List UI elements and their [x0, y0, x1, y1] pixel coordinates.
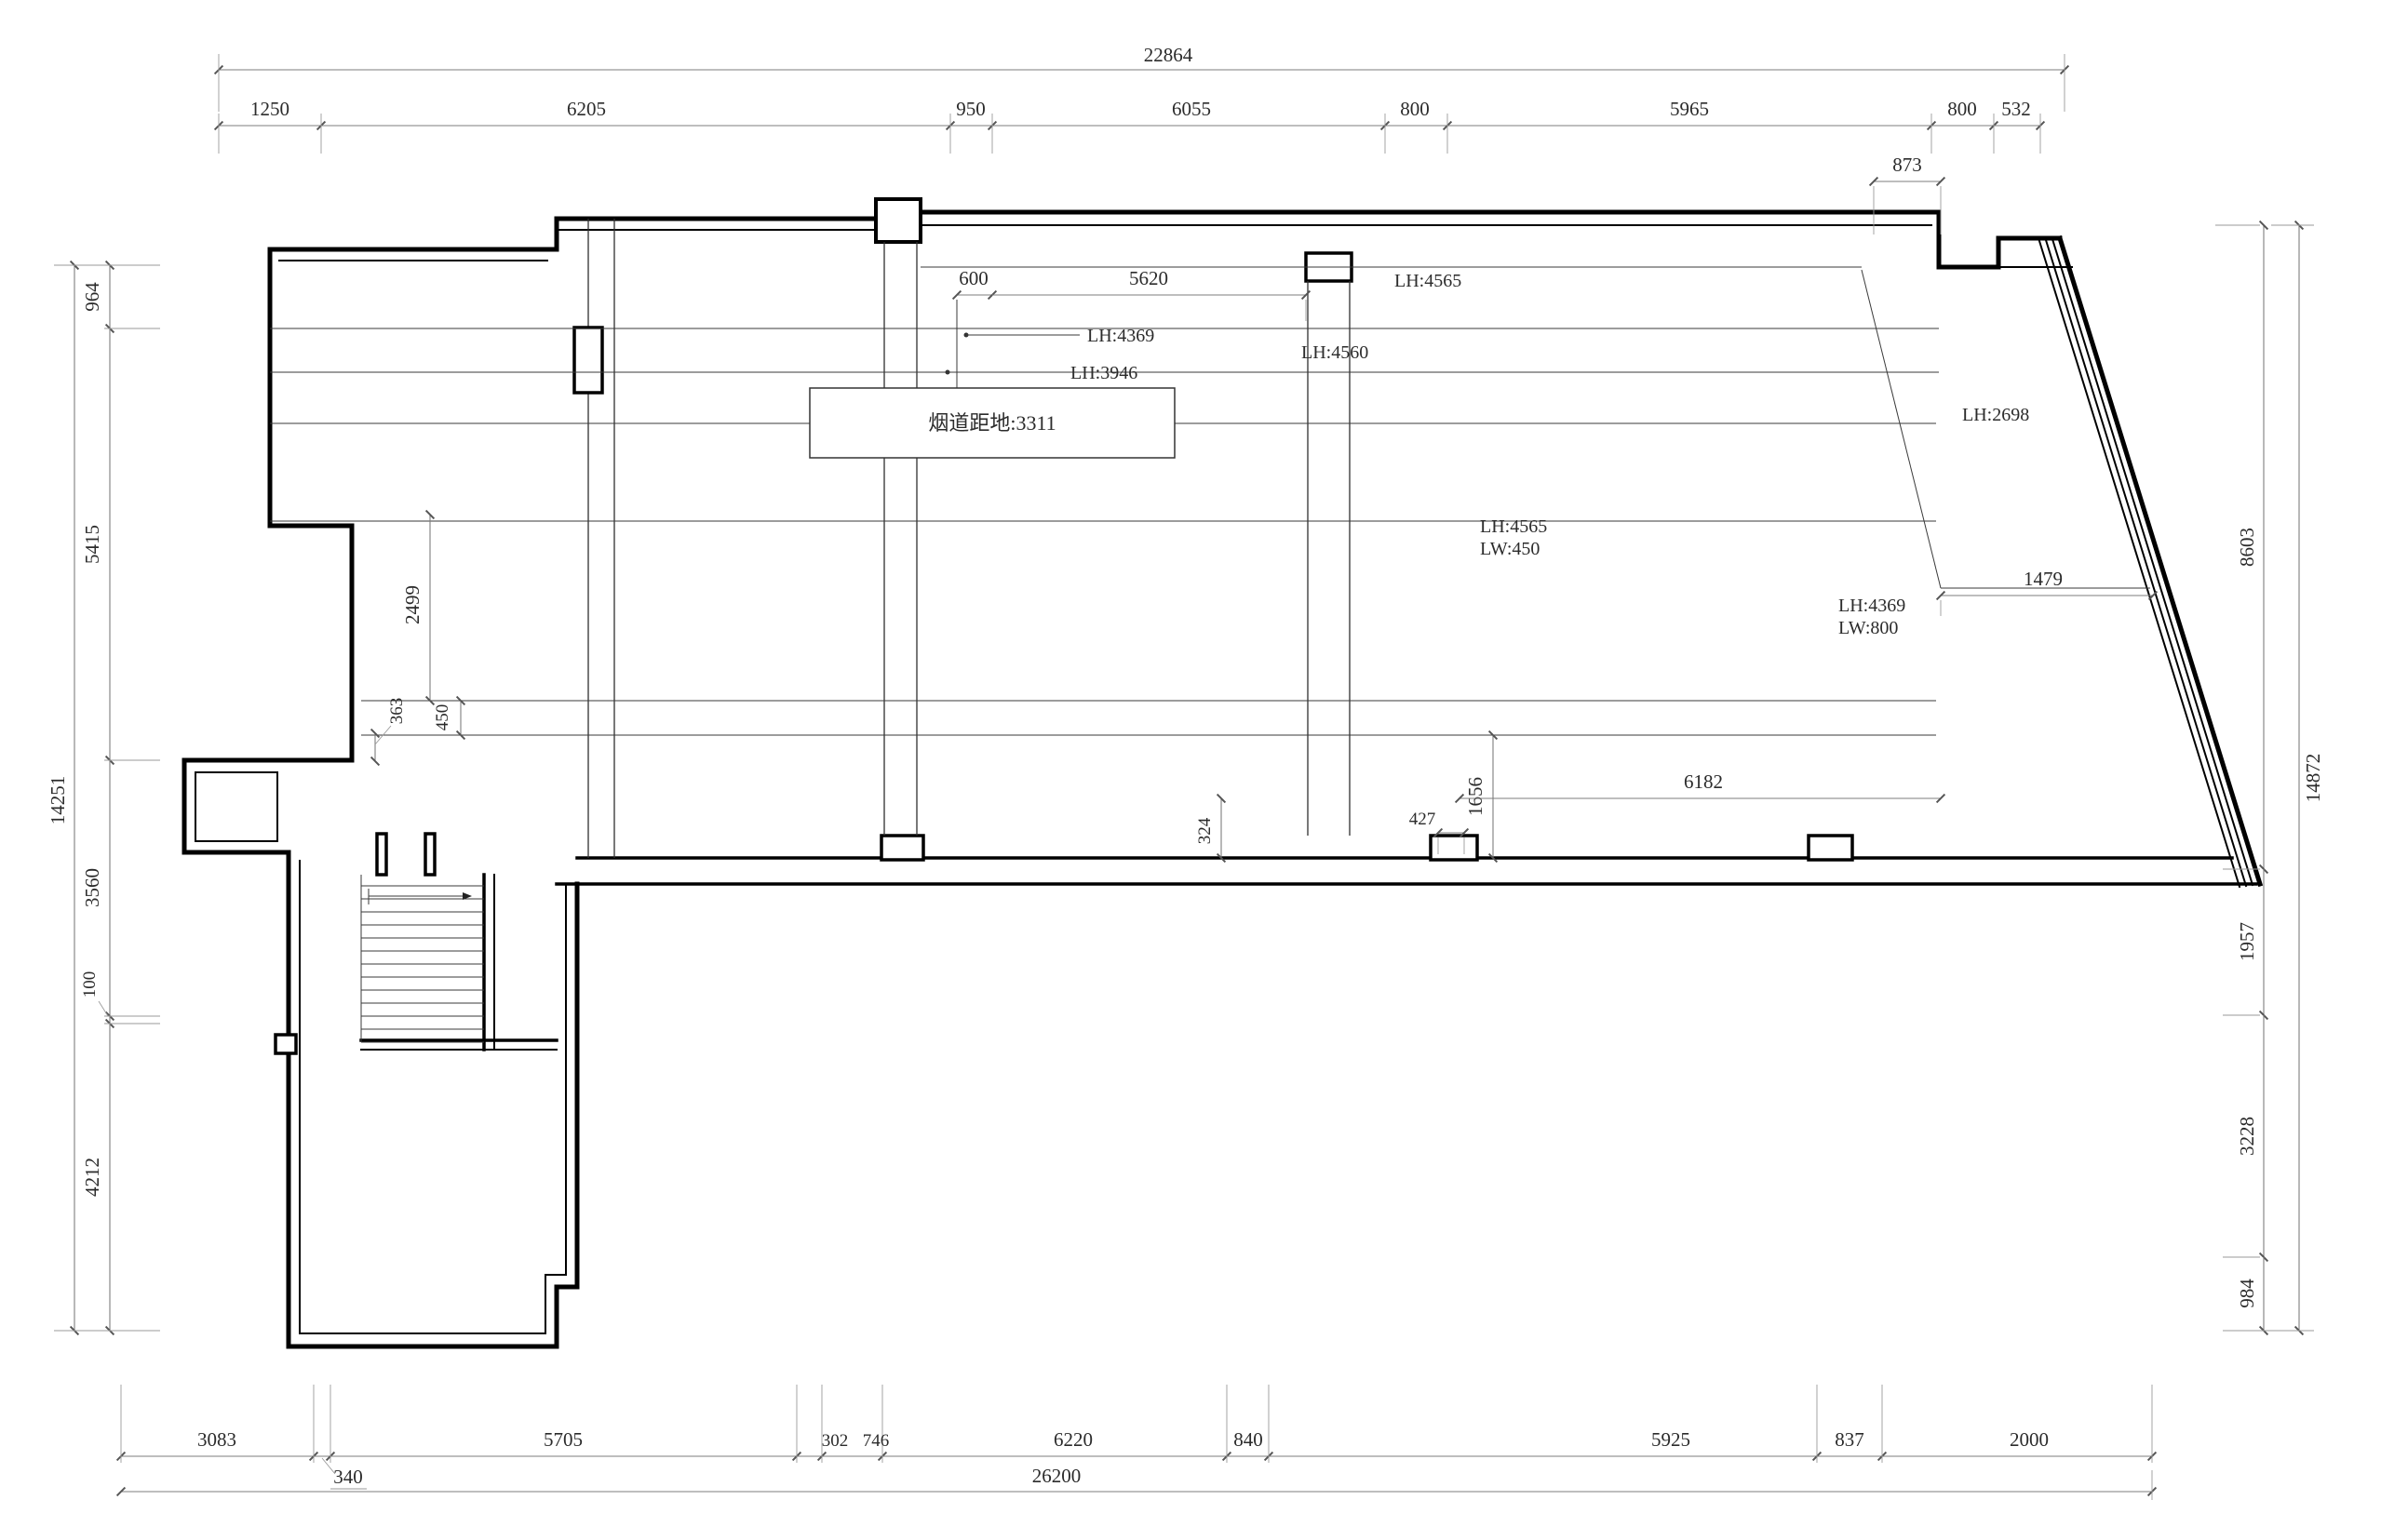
stair-stub-wall-1: [377, 834, 386, 875]
dim-bottom-seg-6: 5925: [1651, 1428, 1690, 1451]
floor-plan-walls: [184, 199, 2260, 1346]
dim-top-notch: 873: [1892, 154, 1922, 176]
dim-right-seg-1: 1957: [2236, 922, 2258, 961]
pilaster-1: [881, 836, 923, 860]
label-lh4565-top: LH:4565: [1394, 271, 1461, 291]
left-dim-chain: 14251 964 5415 3560 100 4212: [47, 265, 160, 1331]
dim-top-seg-3: 6055: [1172, 98, 1211, 120]
label-lw450: LW:450: [1480, 539, 1540, 559]
bottom-dim-chain: 3083 5705 302 746 6220 840 5925 837 2000…: [121, 1385, 2152, 1500]
top-extension-lines: [219, 114, 2040, 154]
dim-left-seg-2: 3560: [81, 868, 103, 907]
dim-top-overall: 22864: [1144, 44, 1193, 66]
label-lw800: LW:800: [1838, 618, 1898, 638]
dim-324: 324: [1195, 817, 1215, 844]
bottom-extension-lines: [121, 1385, 2152, 1463]
dim-top-seg-5: 5965: [1670, 98, 1709, 120]
dim-left-seg-0: 964: [81, 282, 103, 312]
label-lh4565-mid: LH:4565: [1480, 516, 1547, 537]
dim-bottom-seg-4: 6220: [1054, 1428, 1093, 1451]
dim-right-overall: 14872: [2302, 754, 2324, 803]
dim-right-seg-0: 8603: [2236, 528, 2258, 567]
label-lh3946: LH:3946: [1070, 363, 1137, 383]
label-lh4560: LH:4560: [1301, 342, 1368, 363]
top-right-notch: [1939, 212, 2060, 267]
dim-left-seg-4: 4212: [81, 1158, 103, 1197]
pilaster-2: [1431, 836, 1477, 860]
dim-6182: 6182: [1684, 770, 1723, 793]
dim-bottom-overall: 26200: [1032, 1465, 1082, 1487]
dim-450: 450: [433, 704, 452, 731]
label-lh2698: LH:2698: [1962, 405, 2029, 425]
dim-top-seg-6: 800: [1947, 98, 1977, 120]
dim-bottom-offset: 340: [333, 1466, 363, 1488]
dim-2499: 2499: [401, 585, 424, 624]
duct-label: 烟道距地:3311: [928, 411, 1056, 435]
right-dim-chain: 8603 1957 3228 984 14872: [2215, 225, 2324, 1331]
protrusion-inner: [195, 772, 277, 841]
column-top-1: [876, 199, 921, 242]
top-wall: [270, 219, 876, 249]
dim-363: 363: [387, 698, 407, 725]
dim-left-overall: 14251: [47, 776, 69, 825]
dim-bottom-seg-2: 302: [822, 1431, 849, 1451]
duct-shaft: [574, 328, 602, 393]
dim-1656: 1656: [1464, 777, 1486, 816]
dim-left-seg-1: 5415: [81, 525, 103, 564]
left-wall-and-lower-room: [184, 249, 577, 1346]
dim-bottom-seg-5: 840: [1233, 1428, 1263, 1451]
pilaster-3: [1809, 836, 1852, 860]
duct-box: 烟道距地:3311: [810, 388, 1175, 458]
left-extension-lines: [104, 265, 160, 1331]
dim-bottom-seg-3: 746: [863, 1431, 890, 1451]
dim-1479: 1479: [2024, 568, 2063, 590]
dim-top-seg-1: 6205: [567, 98, 606, 120]
dim-5620: 5620: [1129, 267, 1168, 289]
top-dim-chain: 22864 1250 6205 950 6055 800 5965 800 53…: [219, 44, 2065, 234]
floor-plan-drawing: 烟道距地:3311 LH:4369 LH:3946 LH:4565 LH:456…: [0, 0, 2381, 1540]
dim-top-seg-2: 950: [956, 98, 986, 120]
stairs: [361, 834, 494, 1050]
label-lh4369-top: LH:4369: [1087, 326, 1154, 346]
dim-bottom-seg-7: 837: [1835, 1428, 1864, 1451]
dim-top-seg-0: 1250: [250, 98, 289, 120]
dim-left-seg-3: 100: [80, 971, 100, 998]
label-lh4369-right: LH:4369: [1838, 596, 1905, 616]
stair-treads: [361, 886, 484, 1042]
interior-dims: 600 5620 2499 450 363 324 427 1656 6182 …: [375, 267, 2153, 858]
dim-bottom-seg-0: 3083: [197, 1428, 236, 1451]
dim-right-seg-3: 984: [2236, 1279, 2258, 1308]
dim-top-seg-4: 800: [1400, 98, 1430, 120]
dim-600: 600: [959, 267, 989, 289]
ceiling-diagonal: [1862, 270, 1941, 588]
slanted-wall: [2039, 238, 2260, 887]
cad-floor-plan-sheet: 烟道距地:3311 LH:4369 LH:3946 LH:4565 LH:456…: [0, 0, 2381, 1540]
dim-427: 427: [1409, 810, 1436, 829]
partition-stub: [276, 1035, 296, 1053]
dim-bottom-seg-1: 5705: [544, 1428, 583, 1451]
stair-stub-wall-2: [425, 834, 435, 875]
dim-bottom-seg-8: 2000: [2010, 1428, 2049, 1451]
dim-right-seg-2: 3228: [2236, 1117, 2258, 1156]
dim-top-seg-7: 532: [2001, 98, 2031, 120]
lower-room-inner: [300, 861, 566, 1333]
